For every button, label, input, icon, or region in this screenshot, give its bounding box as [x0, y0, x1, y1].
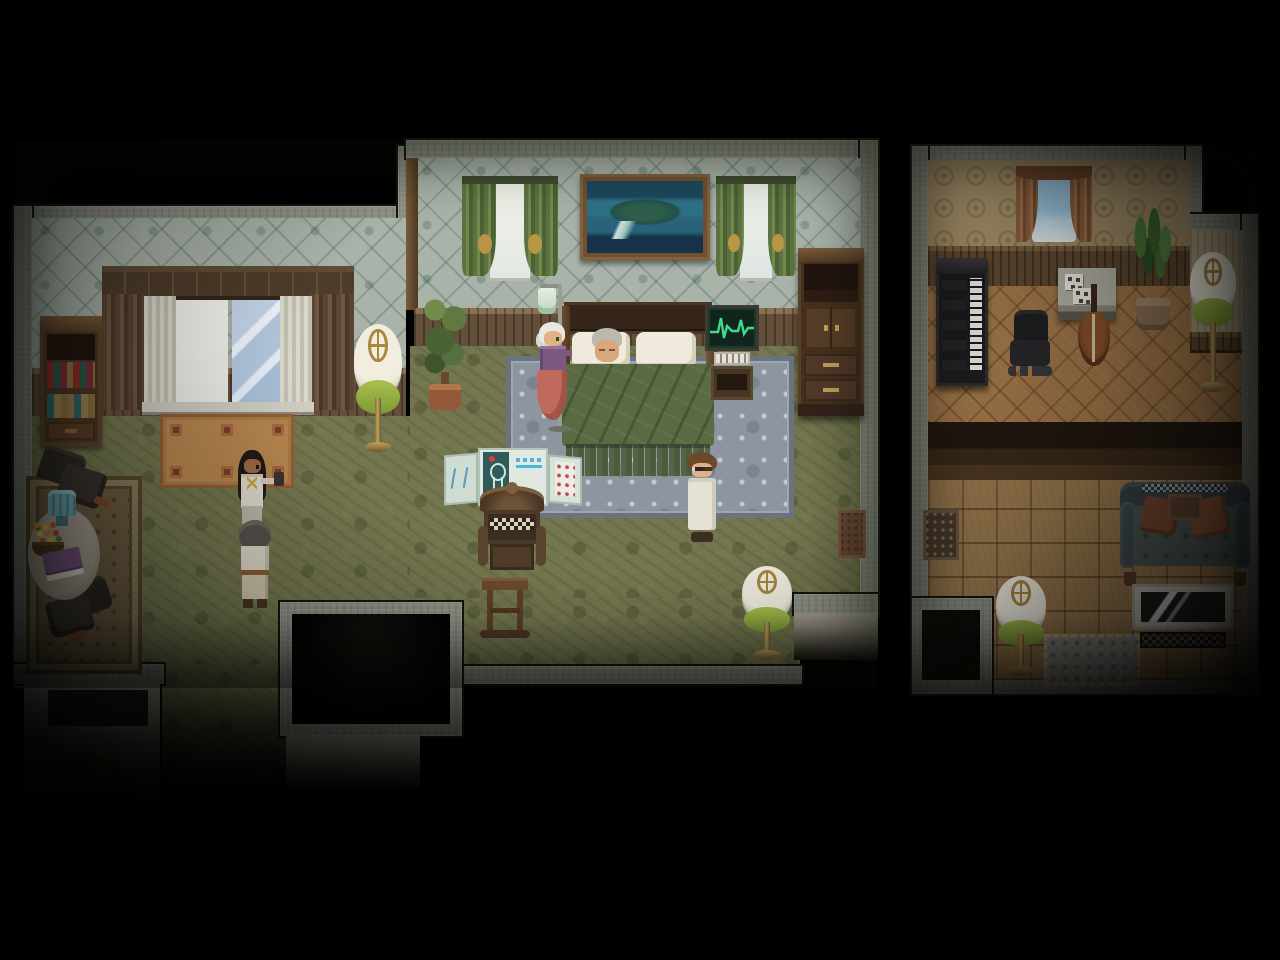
sofa-center-panel: [1168, 494, 1202, 520]
stand-feet: [480, 630, 530, 638]
stand-top: [482, 578, 528, 590]
teal-shade: [48, 490, 76, 516]
drawer-handle: [65, 429, 77, 433]
chart-note-glyphs: [516, 458, 542, 462]
boy-shoe: [257, 599, 267, 608]
closed-eyes: [599, 349, 605, 351]
plant-pot: [1136, 298, 1170, 330]
curtain-left: [716, 176, 744, 276]
lamp-base: [753, 650, 781, 660]
boy-shoe: [243, 599, 253, 608]
stairwell-opening[interactable]: [292, 614, 450, 724]
tv-stand: [1140, 632, 1226, 648]
door-knob: [835, 325, 839, 331]
books-row: [47, 362, 95, 388]
doctor-glasses: [692, 467, 712, 471]
sofa-back-trim: [1142, 484, 1228, 492]
chair-finial: [506, 482, 518, 494]
curtain-right: [768, 176, 796, 276]
tieback: [478, 234, 492, 254]
window-pane-lit: [176, 300, 228, 404]
floor-lamp[interactable]: [1190, 252, 1236, 392]
sofa-arm: [1120, 502, 1136, 568]
island-painting[interactable]: [580, 174, 710, 260]
wardrobe-doors: [804, 306, 858, 350]
small-rug: [923, 510, 959, 560]
doctor-coat: [688, 478, 716, 530]
window-sheer: [144, 296, 176, 406]
swivel-chair[interactable]: [1006, 310, 1054, 380]
pillow: [636, 332, 696, 368]
chart-head-dot: [489, 456, 495, 462]
chart-note-glyphs: [516, 465, 542, 468]
wood-stand[interactable]: [478, 578, 532, 640]
rug-motif: [272, 424, 284, 436]
eye: [256, 465, 259, 469]
caregiver-face: [544, 331, 562, 346]
curtain-left: [462, 176, 496, 276]
sofa-foot: [1234, 572, 1246, 586]
tieback: [772, 234, 784, 252]
lamp-finial: [1204, 258, 1222, 286]
floor-lamp[interactable]: [742, 566, 792, 660]
drawer-handle: [823, 363, 839, 367]
cello-strings: [1092, 314, 1095, 362]
small-window: [462, 176, 558, 284]
plant-leaves: [1122, 202, 1184, 306]
lamp-pole: [1018, 634, 1024, 668]
piano-keys: [970, 278, 982, 370]
bed-headboard: [564, 302, 712, 334]
big-window: [102, 266, 354, 418]
piano-panel: [942, 278, 966, 370]
monitor-stand: [711, 366, 753, 400]
lamp-finial: [1011, 580, 1031, 606]
satchel-strap: [109, 761, 117, 779]
lamp-pole: [375, 398, 381, 444]
tieback: [728, 234, 740, 252]
satchel-strap: [75, 761, 83, 779]
monitor-screen: [708, 308, 756, 348]
music-window: [1016, 166, 1092, 248]
window-sheer: [280, 296, 312, 406]
television[interactable]: [1132, 584, 1234, 650]
woman-face: [244, 459, 261, 473]
iv-base: [548, 426, 572, 432]
painting-reef: [591, 221, 675, 239]
woman-character[interactable]: [234, 450, 284, 530]
screen-panel-left: [444, 453, 478, 506]
ornate-chair[interactable]: [478, 486, 546, 582]
drawer-handle: [823, 388, 839, 392]
stand-shelf: [717, 374, 747, 390]
wall-top-center: [406, 140, 878, 158]
chair-seat: [1010, 340, 1050, 366]
rug-motif: [170, 424, 182, 436]
lamp-finial: [368, 329, 387, 362]
door-knob: [824, 325, 828, 331]
potted-tree: [416, 288, 474, 414]
curtain-valance: [1016, 166, 1092, 180]
potted-plant: [1122, 202, 1184, 334]
wall-right: [1242, 214, 1258, 694]
doorway-recess: [48, 690, 148, 726]
chair-arm: [536, 526, 546, 566]
shelf-drawer: [47, 422, 95, 440]
iv-bag: [538, 288, 556, 314]
wardrobe-shelf-opening: [804, 264, 858, 302]
bookshelf[interactable]: [40, 316, 102, 446]
lamp-finial: [757, 570, 777, 594]
caregiver-character[interactable]: [532, 322, 574, 426]
flowers: [34, 522, 40, 528]
lamp-base: [1200, 382, 1226, 392]
hallway-fade: [162, 664, 290, 792]
books-row: [47, 394, 95, 418]
sofa-arm: [1234, 502, 1250, 568]
floor-lamp[interactable]: [996, 576, 1046, 676]
lamp-base: [365, 442, 392, 452]
small-window: [716, 176, 796, 284]
rug-motif: [221, 466, 233, 478]
tree-foliage: [420, 288, 470, 376]
doctor-shoes: [691, 532, 713, 542]
tv-screen: [1141, 592, 1225, 622]
patient-face: [595, 340, 619, 362]
caregiver-arm: [560, 350, 572, 356]
boy-shirt: [241, 546, 269, 572]
chair-back: [1014, 310, 1048, 344]
chair-cane-band: [490, 518, 534, 530]
tree-pot: [429, 384, 461, 410]
chair-base: [1008, 366, 1052, 376]
doormat: [838, 510, 866, 558]
exterior-wall-face: [794, 614, 878, 660]
floor-lamp[interactable]: [354, 324, 402, 452]
chair-arm: [478, 526, 488, 566]
lamp-base: [1007, 666, 1035, 676]
wall-bottom-mid: [450, 666, 802, 684]
chair-seat: [490, 544, 534, 570]
eye: [556, 337, 559, 341]
curtain-rod: [462, 176, 558, 184]
dress-gold-trim: [247, 476, 257, 490]
upright-piano[interactable]: [936, 258, 988, 386]
rug-motif: [170, 466, 182, 478]
wardrobe-drawer: [804, 354, 858, 376]
screen-panel-right: [548, 455, 582, 506]
heart-monitor[interactable]: [708, 308, 758, 400]
bed[interactable]: [558, 302, 718, 476]
sofa[interactable]: [1120, 482, 1250, 586]
boy-hair-back: [239, 520, 271, 548]
lamp-pole: [764, 622, 770, 652]
dot-chart: [555, 461, 575, 497]
patient-head[interactable]: [592, 328, 622, 366]
lamp-pole: [1210, 322, 1216, 382]
shelf-gap: [47, 334, 95, 360]
fringe-rug: [1044, 634, 1140, 686]
window-sill: [142, 402, 314, 412]
wall-bottom-right: [794, 594, 878, 614]
wardrobe-cornice: [798, 248, 864, 262]
den-corner-dark: [922, 610, 980, 680]
exterior-wall-face: [286, 736, 420, 788]
boy-pants: [242, 575, 268, 599]
shelf-cornice: [40, 316, 102, 332]
game-viewport: [0, 0, 1280, 960]
wardrobe-drawer: [804, 379, 858, 401]
boy-character[interactable]: [236, 520, 274, 610]
curtain-rod: [716, 176, 796, 184]
curtain-right: [524, 176, 558, 276]
window-pane-glass: [232, 300, 280, 404]
cello[interactable]: [1076, 284, 1114, 370]
chair-seat: [44, 593, 95, 639]
room-divider-wall: [928, 422, 1242, 480]
carried-item: [274, 472, 284, 486]
wardrobe[interactable]: [798, 248, 864, 416]
wardrobe-base: [798, 404, 864, 416]
doctor-character[interactable]: [686, 452, 718, 544]
monitor-keypad: [714, 352, 750, 365]
bed-quilt: [562, 364, 714, 446]
caregiver-skirt: [537, 370, 567, 420]
window-drape: [310, 294, 354, 410]
stand-crossbar: [490, 608, 520, 613]
window-drape: [102, 294, 146, 410]
door-split: [830, 308, 832, 348]
painting-canvas: [587, 181, 703, 253]
tieback: [528, 234, 542, 254]
closed-eyes: [609, 349, 615, 351]
piano-lid: [936, 258, 988, 274]
wall-satchel-icon[interactable]: [80, 752, 112, 792]
rug-motif: [221, 424, 233, 436]
